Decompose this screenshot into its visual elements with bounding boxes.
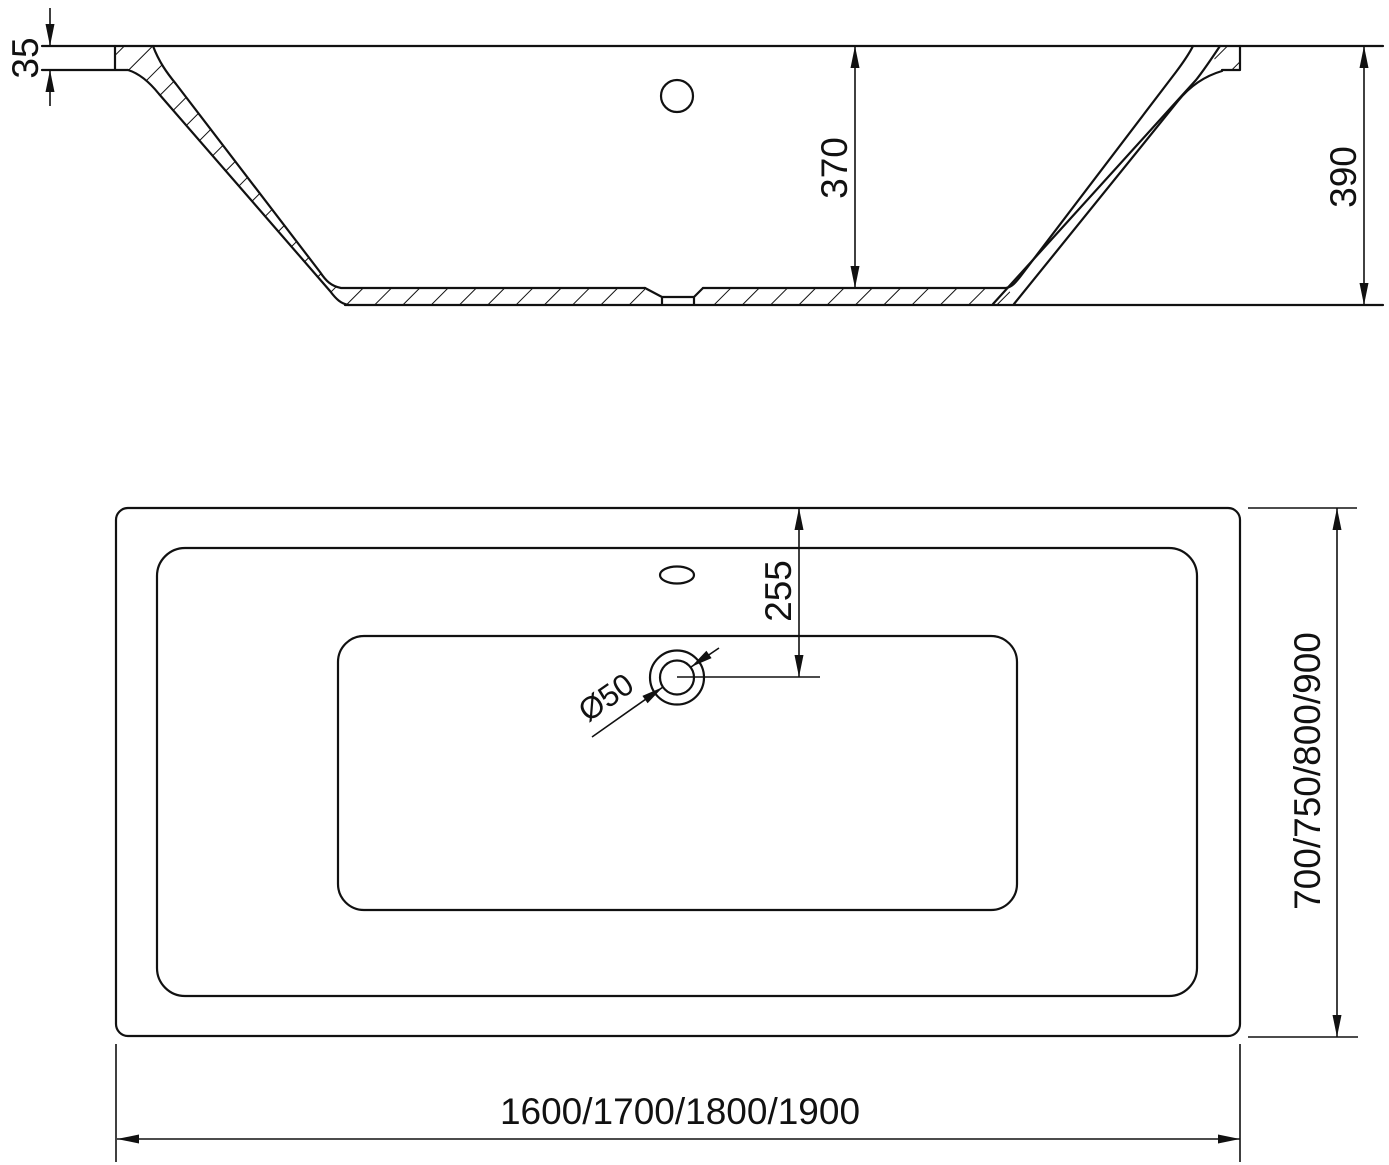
- dim-label-lengths: 1600/1700/1800/1900: [500, 1091, 860, 1132]
- arrow-down-icon: [795, 655, 804, 677]
- arrow-down-icon: [46, 24, 55, 46]
- right-wall-curve: [1014, 71, 1222, 304]
- tub-outer-edge: [116, 508, 1240, 1036]
- dimension-inner-depth: 370: [814, 46, 860, 288]
- dimension-widths: 700/750/800/900: [1248, 508, 1358, 1037]
- dim-label-390: 390: [1323, 146, 1364, 208]
- arrow-up-icon: [1360, 46, 1369, 68]
- arrow-up-icon: [795, 508, 804, 530]
- dimension-total-height: 390: [1323, 46, 1369, 305]
- technical-drawing: 35 370 390: [0, 0, 1389, 1165]
- overflow-hole-plan: [660, 567, 694, 584]
- right-inner-wall: [703, 46, 1193, 288]
- dim-label-widths: 700/750/800/900: [1287, 632, 1328, 910]
- arrow-up-icon: [851, 46, 860, 68]
- section-hatching: [115, 46, 1016, 305]
- dimension-rim-thickness: 35: [5, 8, 55, 106]
- dimension-drain-offset: 255: [758, 508, 804, 677]
- arrow-right-icon: [1218, 1135, 1240, 1144]
- arrow-up-icon: [1333, 508, 1342, 530]
- arrow-down-icon: [1360, 283, 1369, 305]
- arrow-left-icon: [117, 1135, 139, 1144]
- side-section-view: 35 370 390: [5, 8, 1383, 305]
- arrow-up-icon: [46, 70, 55, 92]
- bathtub-technical-drawing-page: 35 370 390: [0, 0, 1389, 1165]
- arrow-down-icon: [851, 266, 860, 288]
- arrow-down-icon: [1333, 1015, 1342, 1037]
- overflow-hole-section: [661, 80, 693, 112]
- dim-label-370: 370: [814, 137, 855, 199]
- dim-label-35: 35: [5, 37, 46, 78]
- dim-label-255: 255: [758, 560, 799, 622]
- plan-view: 255 Ø50 700/750/800/900 1600/1700/1800/1…: [116, 508, 1358, 1162]
- left-flange-outline: [42, 46, 128, 70]
- dimension-drain-diameter: Ø50: [572, 648, 719, 737]
- dim-label-diameter-50: Ø50: [572, 666, 640, 728]
- right-wall-outer-edge: [993, 46, 1220, 304]
- tub-rim-edge: [157, 548, 1197, 996]
- dimension-lengths: 1600/1700/1800/1900: [116, 1044, 1240, 1162]
